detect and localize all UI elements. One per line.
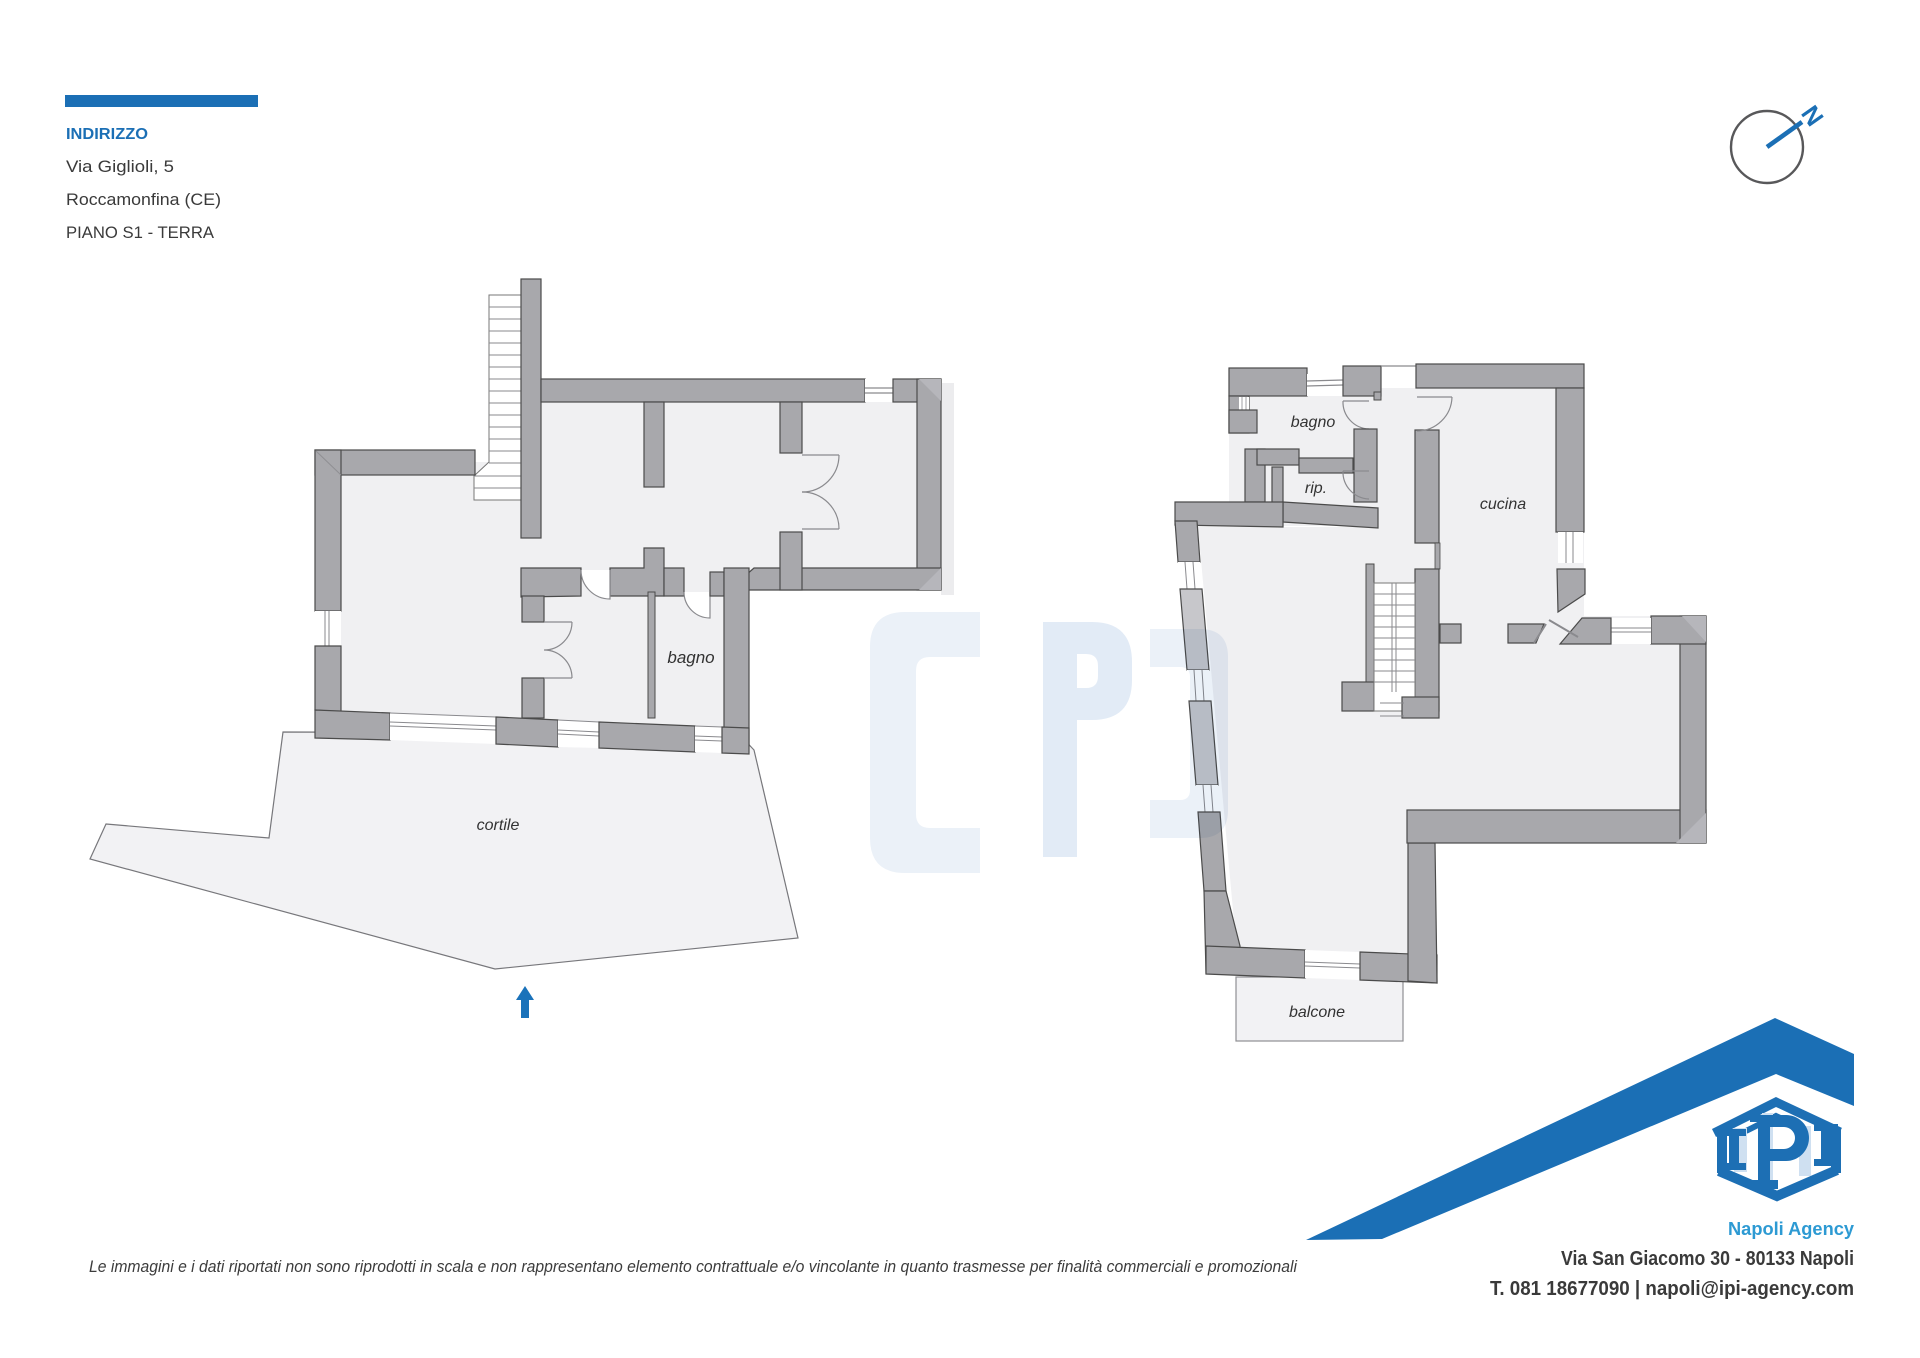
svg-text:cortile: cortile bbox=[477, 817, 520, 834]
svg-text:Napoli Agency: Napoli Agency bbox=[1728, 1219, 1854, 1239]
svg-text:T. 081 18677090 | napoli@ipi-a: T. 081 18677090 | napoli@ipi-agency.com bbox=[1490, 1278, 1854, 1300]
svg-text:balcone: balcone bbox=[1289, 1004, 1345, 1021]
svg-text:bagno: bagno bbox=[667, 648, 714, 667]
svg-text:Via San Giacomo 30 - 80133 Nap: Via San Giacomo 30 - 80133 Napoli bbox=[1561, 1248, 1854, 1270]
svg-text:Roccamonfina (CE): Roccamonfina (CE) bbox=[66, 190, 221, 209]
svg-text:INDIRIZZO: INDIRIZZO bbox=[66, 126, 148, 143]
svg-text:bagno: bagno bbox=[1291, 414, 1336, 431]
svg-text:cucina: cucina bbox=[1480, 496, 1526, 513]
svg-text:Le immagini e i dati riportati: Le immagini e i dati riportati non sono … bbox=[89, 1257, 1298, 1276]
svg-text:PIANO S1 - TERRA: PIANO S1 - TERRA bbox=[66, 223, 215, 242]
svg-text:rip.: rip. bbox=[1305, 480, 1327, 497]
svg-text:Via Giglioli, 5: Via Giglioli, 5 bbox=[66, 157, 174, 176]
